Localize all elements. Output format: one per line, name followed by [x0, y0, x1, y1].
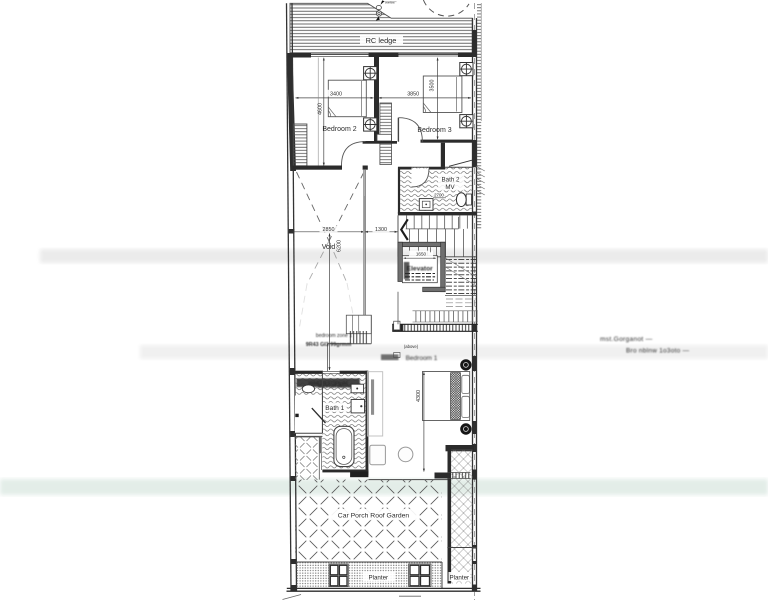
svg-text:9R43 GI3 99grmm: 9R43 GI3 99grmm	[306, 342, 352, 348]
svg-text:Elevator: Elevator	[407, 266, 433, 273]
svg-text:(above): (above)	[404, 344, 419, 349]
svg-text:Void: Void	[322, 244, 336, 251]
svg-text:6200: 6200	[337, 240, 343, 252]
svg-text:3400: 3400	[330, 92, 342, 98]
svg-text:bedroom zone 1: bedroom zone 1	[316, 333, 352, 339]
svg-text:Bedroom 2: Bedroom 2	[322, 126, 356, 133]
svg-text:Bedroom 3: Bedroom 3	[417, 127, 451, 134]
svg-text:Planter: Planter	[368, 574, 388, 581]
svg-text:3850: 3850	[407, 92, 419, 98]
svg-text:4600: 4600	[318, 103, 324, 115]
svg-text:Car Porch Roof Garden: Car Porch Roof Garden	[338, 513, 410, 520]
svg-text:Bro nblnw 1o3oto —: Bro nblnw 1o3oto —	[626, 348, 690, 355]
svg-text:1650: 1650	[416, 252, 427, 257]
svg-text:MV: MV	[445, 184, 455, 191]
svg-text:4300: 4300	[416, 390, 422, 402]
svg-text:3500: 3500	[429, 80, 435, 92]
svg-text:Bath 1: Bath 1	[325, 405, 344, 412]
svg-text:2700: 2700	[434, 193, 444, 198]
svg-text:overflow: overflow	[385, 0, 395, 4]
svg-text:Bath 2: Bath 2	[442, 177, 460, 184]
svg-text:Planter: Planter	[449, 574, 469, 581]
svg-text:RC ledge: RC ledge	[366, 36, 397, 45]
svg-text:Bedroom 1: Bedroom 1	[406, 355, 438, 362]
svg-text:mst.Gorganot —: mst.Gorganot —	[600, 336, 653, 343]
svg-text:1300: 1300	[375, 227, 387, 233]
svg-text:2850: 2850	[323, 227, 335, 233]
